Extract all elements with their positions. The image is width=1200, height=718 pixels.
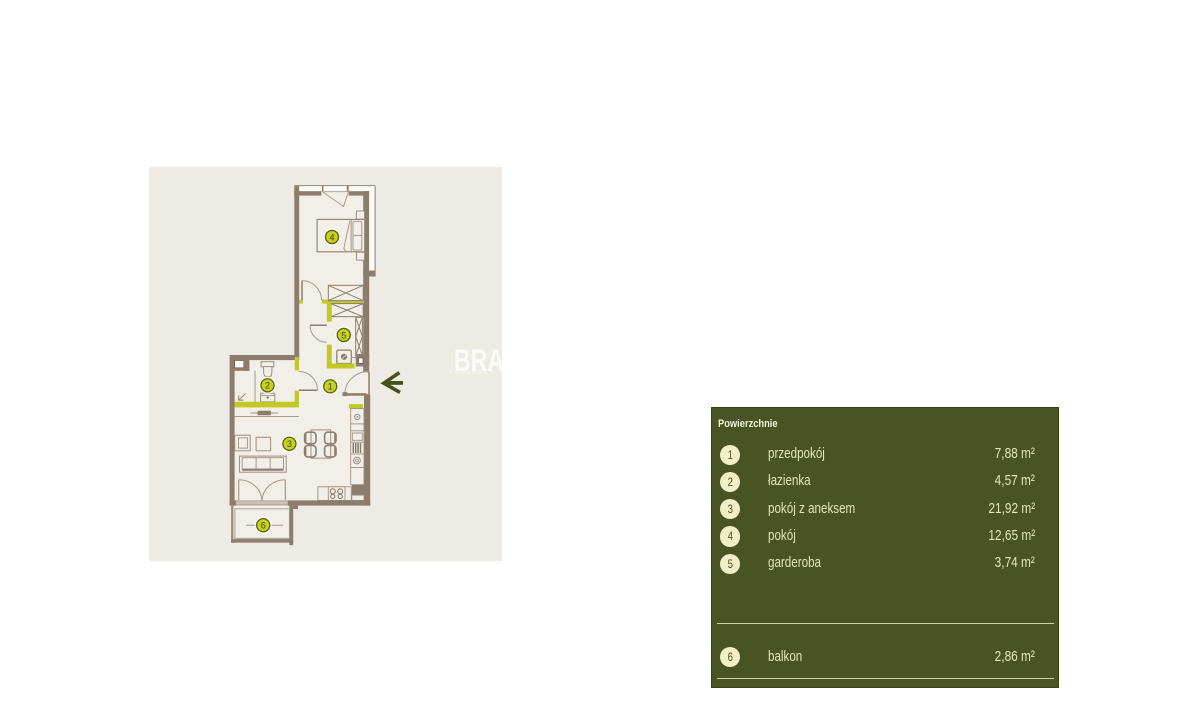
- svg-text:1: 1: [328, 382, 333, 392]
- svg-text:6: 6: [261, 521, 266, 531]
- svg-text:5: 5: [341, 330, 346, 340]
- svg-text:3: 3: [287, 439, 292, 449]
- svg-text:4: 4: [329, 232, 334, 242]
- svg-text:2: 2: [265, 381, 270, 391]
